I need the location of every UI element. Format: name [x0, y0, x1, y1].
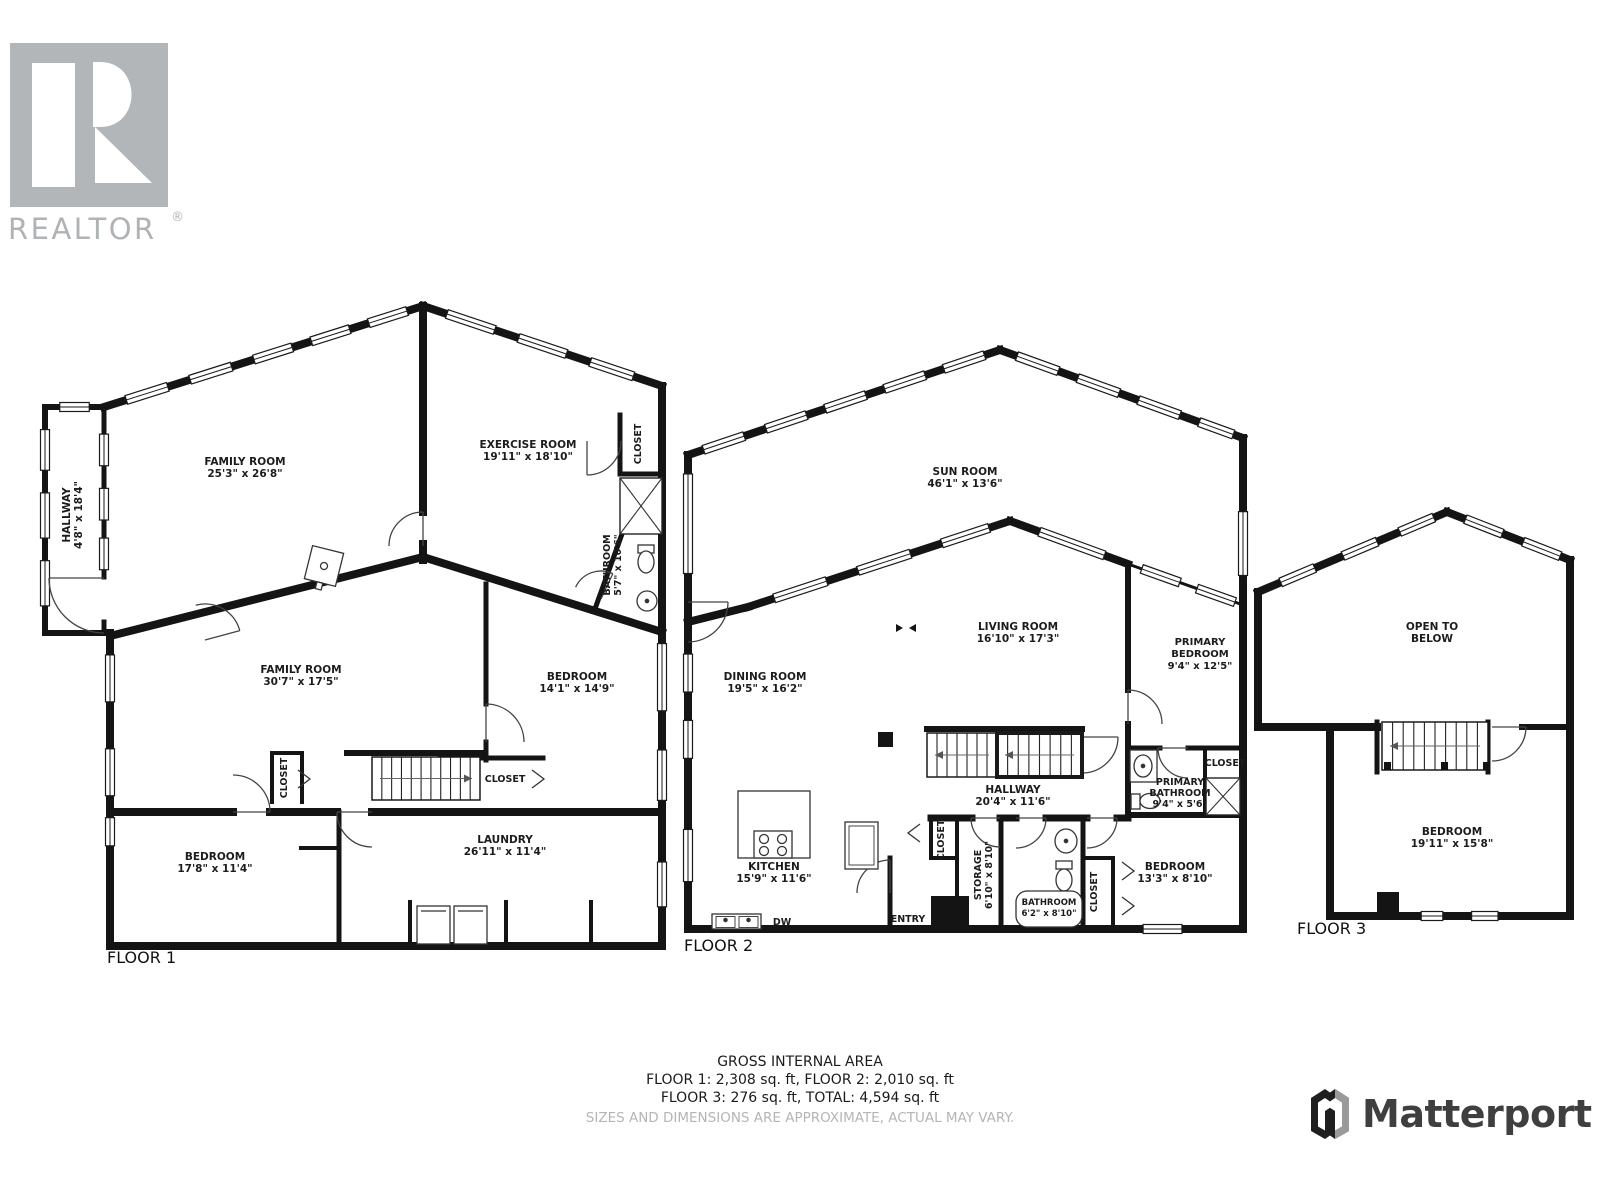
room-label-f2-entry: ENTRY — [891, 914, 926, 925]
room-label-f2-sun-room: SUN ROOM46'1" x 13'6" — [927, 466, 1002, 490]
room-label-f1-laundry: LAUNDRY26'11" x 11'4" — [464, 834, 547, 858]
room-label-f1-bedroom-middle: BEDROOM14'1" x 14'9" — [539, 671, 614, 695]
room-label-f2-closet-bedroom: CLOSET — [1089, 871, 1100, 912]
room-label-f2-kitchen: KITCHEN15'9" x 11'6" — [736, 861, 811, 885]
area-disclaimer: SIZES AND DIMENSIONS ARE APPROXIMATE, AC… — [586, 1110, 1014, 1126]
room-label-f2-dishwasher: DW — [773, 917, 792, 928]
room-label-f1-family-room-lower: FAMILY ROOM30'7" x 17'5" — [260, 664, 341, 688]
floorplan-canvas: REALTOR ® FAMILY ROOM25'3" x 26'8"EXERCI… — [0, 0, 1600, 1200]
room-label-f2-closet-hall: CLOSET — [936, 819, 947, 860]
room-label-f1-hallway: HALLWAY4'8" x 18'4" — [61, 481, 85, 549]
realtor-logo-r-bar — [32, 63, 75, 187]
room-label-f1-bathroom: BATHROOM5'7" x 10'6" — [602, 534, 624, 596]
stove — [754, 831, 792, 858]
room-label-f2-storage: STORAGE6'10" x 8'10" — [973, 841, 995, 909]
bathroom2-toilet — [1056, 869, 1072, 891]
gross-internal-area-block: GROSS INTERNAL AREA FLOOR 1: 2,308 sq. f… — [586, 1054, 1014, 1126]
f1-toilet — [638, 551, 654, 573]
area-line-2: FLOOR 3: 276 sq. ft, TOTAL: 4,594 sq. ft — [661, 1090, 940, 1106]
realtor-registered-mark: ® — [171, 210, 184, 225]
room-label-f2-living-room: LIVING ROOM16'10" x 17'3" — [977, 621, 1060, 645]
washer — [417, 906, 450, 944]
dryer — [454, 906, 487, 944]
matterport-wordmark: Matterport — [1362, 1092, 1592, 1136]
floor-3-caption: FLOOR 3 — [1297, 919, 1366, 938]
room-label-f1-closet-exercise: CLOSET — [633, 423, 644, 464]
room-label-f2-primary-bathroom: PRIMARYBATHROOM9'4" x 5'6" — [1149, 777, 1210, 810]
room-label-f2-bathroom: BATHROOM6'2" x 8'10" — [1021, 898, 1076, 919]
room-label-f2-bedroom: BEDROOM13'3" x 8'10" — [1137, 861, 1212, 885]
matterport-logo: Matterport — [1311, 1089, 1592, 1139]
room-label-f3-open-to-below: OPEN TOBELOW — [1406, 621, 1458, 645]
floor-2-caption: FLOOR 2 — [684, 936, 753, 955]
floor-1-caption: FLOOR 1 — [107, 948, 176, 967]
area-line-1: FLOOR 1: 2,308 sq. ft, FLOOR 2: 2,010 sq… — [646, 1072, 954, 1088]
floorplan-page: REALTOR ® FAMILY ROOM25'3" x 26'8"EXERCI… — [0, 0, 1600, 1200]
room-label-f2-hallway: HALLWAY20'4" x 11'6" — [975, 784, 1050, 808]
gross-internal-area-title: GROSS INTERNAL AREA — [717, 1054, 883, 1070]
room-label-f3-bedroom: BEDROOM19'11" x 15'8" — [1411, 826, 1494, 850]
room-label-f2-closet-primary: CLOSET — [1205, 758, 1246, 769]
room-label-f1-family-room-upper: FAMILY ROOM25'3" x 26'8" — [204, 456, 285, 480]
door-direction-ticks — [896, 624, 916, 632]
realtor-logo: REALTOR ® — [8, 43, 184, 246]
room-label-f1-exercise-room: EXERCISE ROOM19'11" x 18'10" — [480, 439, 577, 463]
room-label-f1-closet-bedroom: CLOSET — [485, 774, 526, 785]
room-label-f2-dining-room: DINING ROOM19'5" x 16'2" — [724, 671, 807, 695]
room-label-f2-primary-bedroom: PRIMARYBEDROOM9'4" x 12'5" — [1168, 637, 1233, 672]
room-label-f1-bedroom-lower: BEDROOM17'8" x 11'4" — [177, 851, 252, 875]
room-label-f1-closet-stairs: CLOSET — [279, 757, 290, 798]
realtor-wordmark: REALTOR — [8, 212, 157, 246]
